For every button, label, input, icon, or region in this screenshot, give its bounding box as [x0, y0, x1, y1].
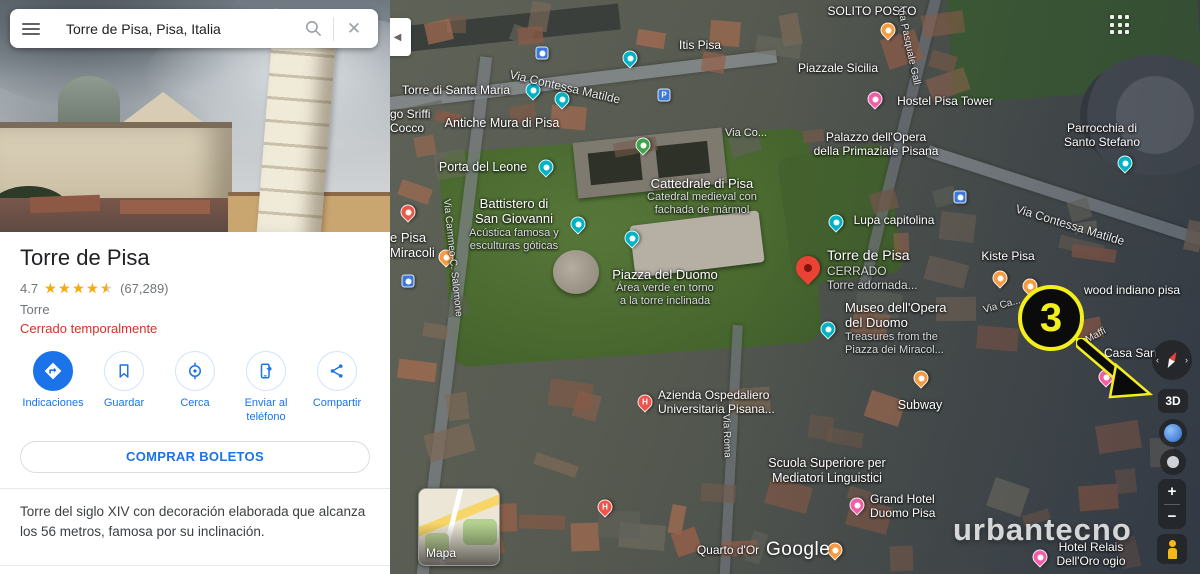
poi-label[interactable]: Piazza del DuomoÁrea verde en tornoa la …: [612, 267, 718, 308]
poi-label[interactable]: Torre di Santa Maria: [402, 83, 510, 97]
street-label: Via Cammeo C. Salomone: [440, 199, 464, 318]
cathedral-dome-decor: [58, 76, 120, 128]
poi-label[interactable]: Lupa capitolina: [854, 213, 935, 227]
map-labels-layer: SOLITO POSTOItis PisaPiazzale SiciliaHos…: [390, 0, 1200, 574]
apps-grid-icon[interactable]: [1108, 13, 1132, 37]
nearby-icon: [175, 351, 215, 391]
poi-label[interactable]: Torre de PisaCERRADOTorre adornada...: [827, 247, 918, 292]
rating-value: 4.7: [20, 281, 38, 296]
nearby-button[interactable]: Cerca: [162, 351, 228, 425]
poi-label[interactable]: Subway: [898, 398, 942, 413]
street-label: Via Contessa Matilde: [508, 67, 621, 106]
poi-label[interactable]: Azienda OspedalieroUniversitaria Pisana.…: [658, 388, 775, 416]
globe-view-button[interactable]: [1159, 419, 1187, 447]
map-toggle-label: Mapa: [426, 546, 456, 560]
buy-tickets-button[interactable]: COMPRAR BOLETOS: [20, 441, 370, 473]
divider: [333, 17, 334, 41]
directions-icon: [33, 351, 73, 391]
site-watermark: urbantecno: [953, 512, 1132, 548]
poi-label[interactable]: Cattedrale di PisaCatedral medieval conf…: [647, 176, 757, 217]
rating-row: 4.7 ★★★★★★★★★★ (67,289): [20, 280, 370, 297]
zoom-out-button[interactable]: −: [1158, 505, 1186, 530]
3d-view-button[interactable]: 3D: [1158, 389, 1188, 413]
save-button[interactable]: Guardar: [91, 351, 157, 425]
place-category: Torre: [20, 302, 370, 317]
zoom-control: + −: [1158, 479, 1186, 529]
search-input[interactable]: Torre de Pisa, Pisa, Italia: [66, 21, 301, 37]
poi-label[interactable]: Palazzo dell'Operadella Primaziale Pisan…: [814, 130, 939, 158]
place-panel: Torre de Pisa, Pisa, Italia ✕ Torre de P…: [0, 0, 390, 574]
roof-decor: [120, 200, 210, 214]
street-label: Via Contessa Matilde: [1014, 202, 1126, 249]
poi-label[interactable]: Antiche Mura di Pisa: [445, 116, 560, 131]
page-title: Torre de Pisa: [20, 245, 370, 271]
search-bar: Torre de Pisa, Pisa, Italia ✕: [10, 9, 378, 48]
roof-decor: [30, 195, 101, 213]
poi-label[interactable]: Scuola Superiore perMediatori Linguistic…: [768, 456, 885, 486]
globe-icon: [1164, 424, 1182, 442]
poi-label[interactable]: e PisaMiracoli: [390, 230, 435, 261]
poi-label[interactable]: Grand HotelDuomo Pisa: [870, 492, 935, 520]
poi-label[interactable]: Parrocchia diSanto Stefano: [1064, 121, 1140, 149]
poi-label[interactable]: Quarto d'Or: [697, 543, 759, 557]
poi-label[interactable]: Porta del Leone: [439, 160, 527, 175]
poi-label[interactable]: Piazzale Sicilia: [798, 61, 878, 75]
map-style-toggle[interactable]: Mapa: [418, 488, 500, 566]
status-badge: Cerrado temporalmente: [20, 321, 370, 336]
annotation-arrow-icon: [1076, 338, 1156, 402]
poi-label[interactable]: Itis Pisa: [679, 38, 721, 52]
poi-label[interactable]: Battistero diSan GiovanniAcústica famosa…: [469, 196, 559, 253]
compass-control[interactable]: [1152, 340, 1192, 380]
collapse-panel-button[interactable]: ◀: [390, 18, 411, 56]
poi-label[interactable]: Museo dell'Operadel DuomoTreasures from …: [845, 300, 946, 357]
menu-icon[interactable]: [22, 23, 40, 35]
street-label: Via Roma: [719, 414, 732, 458]
directions-button[interactable]: Indicaciones: [20, 351, 86, 425]
search-icon[interactable]: [301, 17, 325, 41]
share-icon: [317, 351, 357, 391]
pegman-street-view-button[interactable]: [1157, 534, 1187, 564]
cathedral-gable-decor: [118, 92, 208, 126]
zoom-in-button[interactable]: +: [1158, 479, 1186, 504]
poi-label[interactable]: wood indiano pisa: [1084, 283, 1180, 297]
poi-label[interactable]: Hostel Pisa Tower: [897, 94, 993, 108]
divider: [0, 565, 390, 566]
google-maps-app: Torre de Pisa, Pisa, Italia ✕ Torre de P…: [0, 0, 1200, 574]
send-to-phone-button[interactable]: Enviar al teléfono: [233, 351, 299, 425]
annotation-step-badge: 3: [1018, 285, 1084, 351]
action-buttons: Indicaciones Guardar Cerca: [20, 351, 370, 425]
sun-lighting-button[interactable]: [1160, 449, 1186, 475]
share-button[interactable]: Compartir: [304, 351, 370, 425]
close-icon[interactable]: ✕: [342, 17, 366, 41]
poi-label[interactable]: Kiste Pisa: [981, 249, 1034, 263]
place-details: Torre de Pisa 4.7 ★★★★★★★★★★ (67,289) To…: [0, 245, 390, 473]
pegman-icon: [1169, 540, 1176, 547]
map-canvas[interactable]: PHH SOLITO POSTOItis PisaPiazzale Sicili…: [390, 0, 1200, 574]
star-rating-icon: ★★★★★★★★★★: [44, 280, 114, 297]
send-to-phone-icon: [246, 351, 286, 391]
google-logo[interactable]: Google: [766, 539, 830, 561]
street-label: Via Pasquale Gall: [894, 6, 922, 86]
street-label: Via Ca...: [982, 295, 1022, 316]
poi-label[interactable]: go SriffiCocco: [390, 107, 430, 135]
street-label: Via Co...: [725, 127, 767, 140]
sun-icon: [1167, 456, 1179, 468]
bookmark-icon: [104, 351, 144, 391]
place-description: Torre del siglo XIV con decoración elabo…: [0, 489, 390, 544]
review-count[interactable]: (67,289): [120, 281, 168, 296]
